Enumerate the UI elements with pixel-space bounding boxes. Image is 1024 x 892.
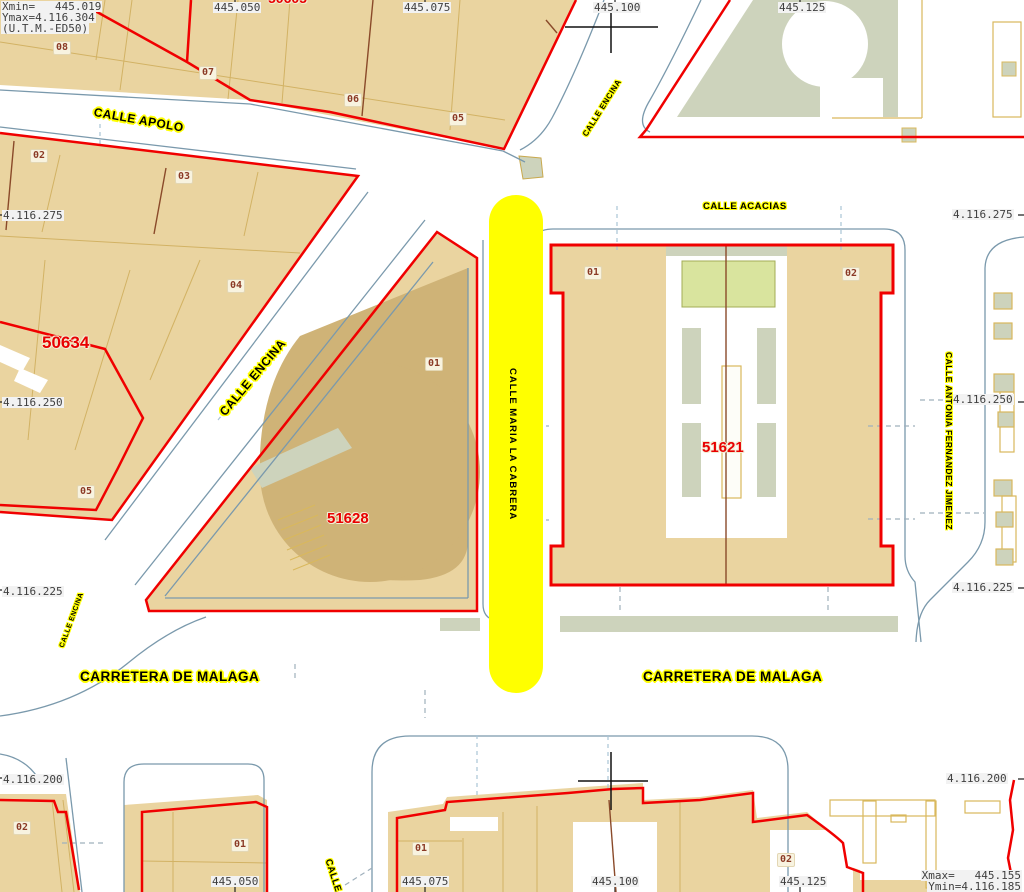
grid-easting-top: 445.100	[593, 2, 641, 13]
grid-northing-left: 4.116.275	[2, 210, 64, 221]
street-label-carretera-de-malaga-west: CARRETERA DE MALAGA	[80, 670, 259, 684]
parcel-label-03[interactable]: 03	[175, 170, 193, 184]
parcel-label-02[interactable]: 02	[30, 149, 48, 163]
block-number-clipped-top: 50605	[268, 0, 307, 5]
grid-easting-bottom: 445.125	[779, 876, 827, 887]
corner-ref-datum: (U.T.M.-ED50)	[1, 23, 89, 34]
grid-northing-right: 4.116.225	[952, 582, 1014, 593]
parcel-label-01-south-a[interactable]: 01	[231, 838, 249, 852]
parcel-label-06[interactable]: 06	[344, 93, 362, 107]
parcel-label-01-east[interactable]: 01	[584, 266, 602, 280]
grid-easting-top: 445.125	[778, 2, 826, 13]
grid-northing-left: 4.116.225	[2, 586, 64, 597]
block-number-51621: 51621	[702, 440, 744, 455]
parcel-label-08[interactable]: 08	[53, 41, 71, 55]
street-label-calle-acacias: CALLE ACACIAS	[703, 202, 787, 212]
parcel-label-04[interactable]: 04	[227, 279, 245, 293]
parcel-label-02-south-east[interactable]: 02	[777, 853, 795, 867]
parcel-label-05-west[interactable]: 05	[77, 485, 95, 499]
grid-easting-top: 445.075	[403, 2, 451, 13]
grid-northing-left: 4.116.250	[2, 397, 64, 408]
parcel-label-02-east[interactable]: 02	[842, 267, 860, 281]
parcel-label-05[interactable]: 05	[449, 112, 467, 126]
street-label-calle-maria-la-cabrera[interactable]: CALLE MARIA LA CABRERA	[508, 368, 518, 520]
grid-easting-bottom: 445.075	[401, 876, 449, 887]
street-label-calle-antonia-fernandez-jimenez: CALLE ANTONIA FERNANDEZ JIMENEZ	[945, 352, 954, 530]
parcel-label-01-triangle[interactable]: 01	[425, 357, 443, 371]
cadastral-map-viewport[interactable]: Xmin= 445.019 Ymax=4.116.304 (U.T.M.-ED5…	[0, 0, 1024, 892]
grid-easting-bottom: 445.050	[211, 876, 259, 887]
parcel-label-01-south-b[interactable]: 01	[412, 842, 430, 856]
grid-easting-bottom: 445.100	[591, 876, 639, 887]
grid-northing-right: 4.116.200	[946, 773, 1008, 784]
parcel-label-02-south-west[interactable]: 02	[13, 821, 31, 835]
corner-ref-ymin: Ymin=4.116.185	[927, 881, 1022, 892]
street-label-carretera-de-malaga-east: CARRETERA DE MALAGA	[643, 670, 822, 684]
block-number-51628: 51628	[327, 511, 369, 526]
grid-northing-left: 4.116.200	[2, 774, 64, 785]
parcel-label-07[interactable]: 07	[199, 66, 217, 80]
grid-northing-right: 4.116.275	[952, 209, 1014, 220]
block-number-50634: 50634	[42, 334, 89, 351]
grid-northing-right: 4.116.250	[952, 394, 1014, 405]
grid-easting-top: 445.050	[213, 2, 261, 13]
